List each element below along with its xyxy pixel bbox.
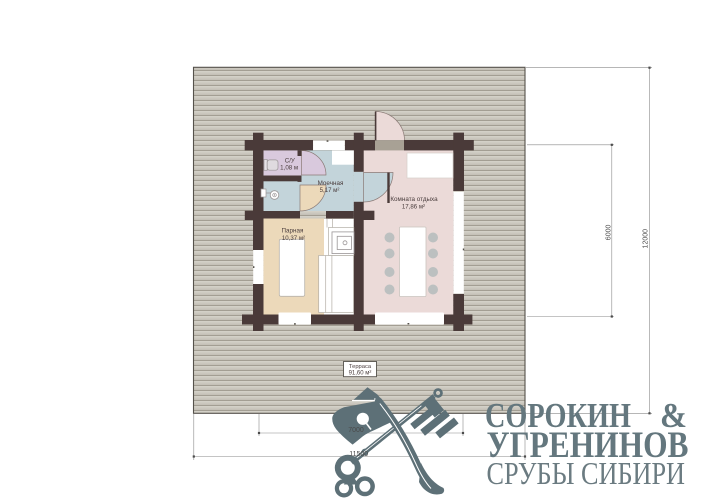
svg-text:Комната отдыха: Комната отдыха <box>390 196 438 203</box>
svg-text:10,37 м²: 10,37 м² <box>282 235 305 242</box>
svg-text:СРУБЫ СИБИРИ: СРУБЫ СИБИРИ <box>487 455 686 491</box>
svg-text:6000: 6000 <box>606 225 613 241</box>
svg-text:Моечная: Моечная <box>318 180 344 187</box>
svg-text:Терраса: Терраса <box>349 364 372 370</box>
svg-text:12000: 12000 <box>643 229 650 249</box>
svg-text:11500: 11500 <box>349 451 368 458</box>
svg-text:Парная: Парная <box>282 228 304 235</box>
svg-text:1,08 м: 1,08 м <box>280 164 298 171</box>
svg-text:17,86 м²: 17,86 м² <box>402 203 425 210</box>
svg-text:91,60 м²: 91,60 м² <box>349 371 372 377</box>
svg-text:5,17 м²: 5,17 м² <box>320 187 340 194</box>
svg-text:7000: 7000 <box>348 427 364 434</box>
